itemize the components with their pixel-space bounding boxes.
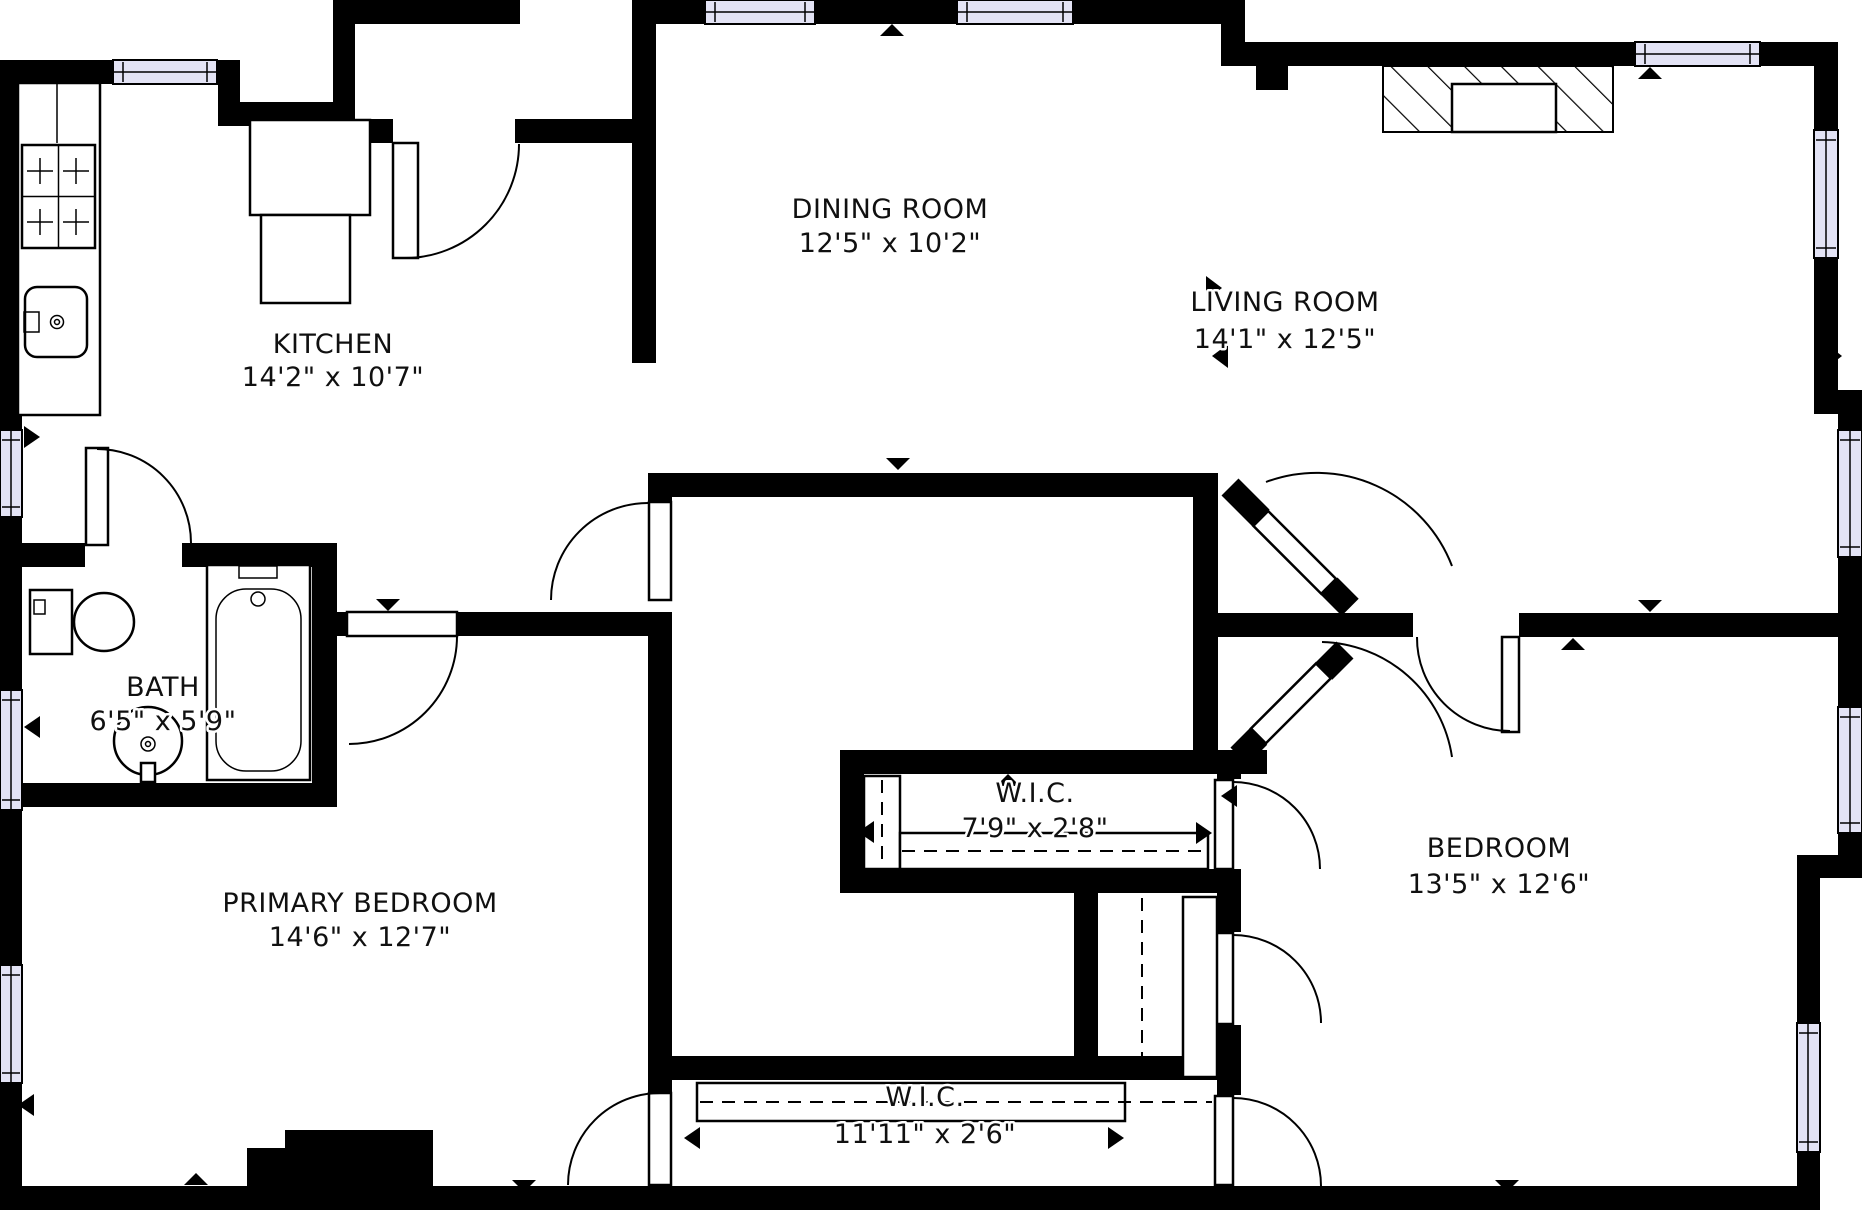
arrow-up-icon — [1561, 638, 1585, 650]
arrow-right-icon — [24, 426, 40, 448]
room-dims-living: 14'1" x 12'5" — [1194, 324, 1376, 355]
room-label-bedroom: BEDROOM — [1427, 833, 1571, 864]
room-label-wic-upper: W.I.C. — [995, 778, 1074, 809]
window — [0, 430, 22, 517]
floor-plan: DINING ROOM 12'5" x 10'2" LIVING ROOM 14… — [0, 0, 1862, 1210]
arrow-down-icon — [1638, 600, 1662, 612]
kitchen-island — [250, 120, 370, 215]
room-dims-primary: 14'6" x 12'7" — [269, 922, 451, 953]
arrow-down-icon — [376, 599, 400, 611]
floor-plan-page: DINING ROOM 12'5" x 10'2" LIVING ROOM 14… — [0, 0, 1862, 1210]
kitchen-door — [551, 502, 671, 600]
room-dims-dining: 12'5" x 10'2" — [799, 228, 981, 259]
kitchen-island — [261, 215, 350, 303]
room-label-primary: PRIMARY BEDROOM — [222, 888, 497, 919]
bedroom-main-door — [1417, 637, 1519, 732]
entry-door — [393, 143, 519, 258]
arrow-up-icon — [184, 1173, 208, 1185]
window — [1814, 130, 1838, 258]
bath-door — [86, 448, 191, 545]
room-dims-wic-lower: 11'11" x 2'6" — [834, 1119, 1016, 1150]
closet-shelf — [1142, 897, 1217, 1077]
window — [1838, 430, 1862, 557]
window — [113, 60, 217, 84]
room-dims-wic-upper: 7'9" x 2'8" — [961, 813, 1108, 844]
room-label-dining: DINING ROOM — [792, 194, 989, 225]
bathtub-icon — [207, 565, 310, 780]
window — [957, 0, 1073, 24]
arrow-up-icon — [880, 24, 904, 36]
window — [1797, 1023, 1820, 1152]
hall-living-diagonal-door — [1222, 473, 1452, 616]
arrow-left-icon — [24, 716, 40, 738]
window — [0, 690, 22, 810]
toilet-icon — [30, 590, 134, 654]
room-dims-bath: 6'5" x 5'9" — [89, 706, 236, 737]
stove-icon — [22, 145, 95, 248]
room-dims-bedroom: 13'5" x 12'6" — [1408, 869, 1590, 900]
fireplace-icon — [1383, 66, 1613, 132]
primary-upper-door — [347, 612, 457, 744]
arrow-up-icon — [1638, 67, 1662, 79]
room-dims-kitchen: 14'2" x 10'7" — [242, 362, 424, 393]
arrow-down-icon — [886, 458, 910, 470]
room-label-bath: BATH — [126, 672, 200, 703]
window — [1635, 42, 1760, 66]
window — [1838, 707, 1862, 833]
kitchen-sink-icon — [24, 287, 87, 357]
room-label-kitchen: KITCHEN — [273, 329, 394, 360]
closet-door — [1215, 933, 1321, 1024]
room-label-wic-lower: W.I.C. — [885, 1082, 964, 1113]
primary-closet-door — [568, 1093, 671, 1185]
wic-lower-door — [1215, 1096, 1321, 1186]
window — [705, 0, 815, 24]
room-label-living: LIVING ROOM — [1190, 287, 1379, 318]
arrow-right-icon — [1108, 1127, 1124, 1149]
window — [0, 965, 22, 1083]
arrow-left-icon — [684, 1127, 700, 1149]
